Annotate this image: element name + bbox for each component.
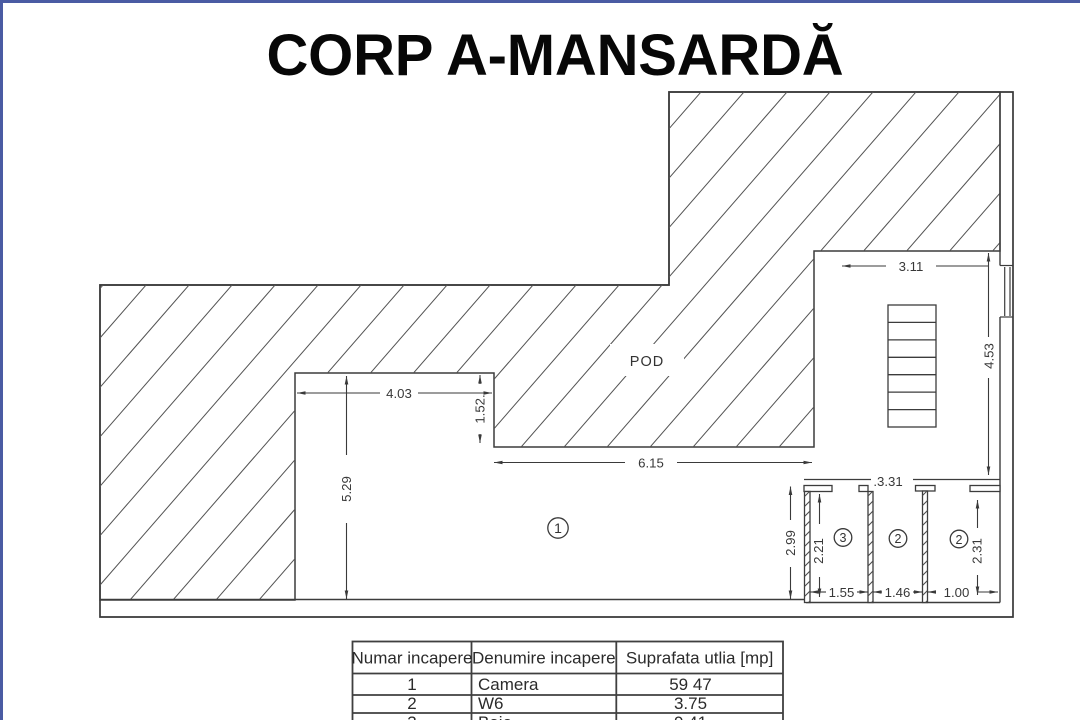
svg-text:3.75: 3.75 — [674, 694, 707, 713]
svg-text:2: 2 — [956, 533, 963, 547]
svg-text:2: 2 — [895, 532, 902, 546]
svg-text:1.00: 1.00 — [944, 585, 970, 600]
svg-text:2.31: 2.31 — [970, 538, 985, 564]
svg-text:4.53: 4.53 — [982, 343, 997, 369]
svg-text:1.52.: 1.52. — [473, 394, 488, 423]
svg-text:Camera: Camera — [478, 675, 539, 694]
svg-text:2.99: 2.99 — [783, 530, 798, 556]
svg-text:1.55: 1.55 — [829, 585, 855, 600]
svg-text:.3.31: .3.31 — [873, 474, 902, 489]
svg-text:POD: POD — [630, 354, 664, 370]
svg-text:Denumire incapere: Denumire incapere — [472, 649, 616, 668]
svg-text:Baie: Baie — [478, 713, 512, 720]
svg-text:3: 3 — [840, 531, 847, 545]
svg-text:W6: W6 — [478, 694, 504, 713]
svg-text:2.21: 2.21 — [811, 538, 826, 564]
svg-text:3.11: 3.11 — [899, 259, 924, 274]
svg-text:6.15: 6.15 — [638, 456, 664, 471]
svg-text:5.29: 5.29 — [339, 476, 354, 502]
svg-text:3: 3 — [407, 713, 416, 720]
svg-text:Suprafata utlia [mp]: Suprafata utlia [mp] — [626, 649, 773, 668]
svg-text:4.03: 4.03 — [386, 386, 412, 401]
svg-text:59 47: 59 47 — [669, 675, 712, 694]
svg-text:1: 1 — [407, 675, 416, 694]
svg-text:Numar incapere: Numar incapere — [352, 649, 473, 668]
svg-text:9.41: 9.41 — [674, 713, 707, 720]
svg-text:1: 1 — [554, 520, 562, 536]
svg-text:1.46: 1.46 — [885, 585, 911, 600]
svg-text:2: 2 — [407, 694, 416, 713]
